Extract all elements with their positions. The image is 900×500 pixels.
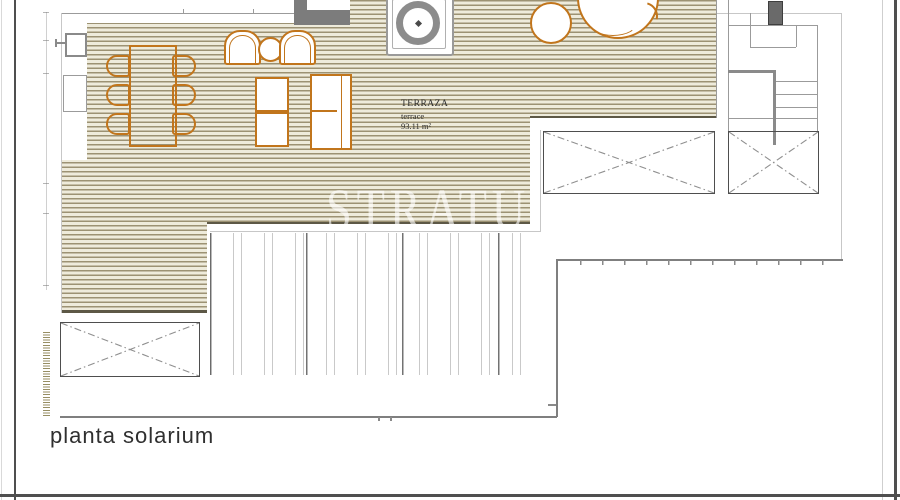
deck-edge	[62, 310, 207, 313]
bbq-grill	[386, 0, 454, 56]
room-label: TERRAZA terrace 93.11 m²	[401, 99, 448, 131]
wall-switch	[65, 33, 87, 57]
tick-mark	[183, 9, 184, 14]
tick-mark	[378, 417, 380, 421]
armchair	[279, 30, 316, 65]
plant-swirl	[588, 8, 638, 36]
boundary-hatch	[43, 330, 50, 416]
stair-tread	[773, 94, 818, 95]
page-frame-line	[14, 0, 16, 500]
deck-right-line	[716, 0, 717, 118]
tick-mark	[548, 404, 556, 406]
stair-line	[817, 25, 818, 131]
boundary-line	[60, 416, 557, 418]
page-frame-line	[882, 0, 883, 500]
stair-tread	[773, 81, 818, 82]
dining-chair	[106, 84, 130, 106]
boundary-line	[556, 259, 558, 417]
dining-chair	[106, 113, 130, 135]
dimension-tick	[43, 12, 49, 13]
dimension-tick	[43, 183, 49, 184]
sun-lounger	[310, 74, 352, 150]
deck-table	[255, 77, 289, 112]
skylight	[728, 131, 819, 194]
skylight	[543, 131, 715, 194]
stair-line	[728, 25, 817, 26]
wall-switch-cap	[55, 39, 57, 47]
plant	[530, 2, 572, 44]
dining-chair	[172, 84, 196, 106]
dining-chair	[172, 55, 196, 77]
plan-left-line	[61, 13, 62, 313]
room-name-en: terrace	[401, 111, 448, 121]
stair-line	[750, 13, 751, 47]
armchair	[224, 30, 261, 65]
dining-chair	[172, 113, 196, 135]
tick-mark	[253, 9, 254, 14]
chimney	[768, 1, 783, 25]
stair-wall-line	[728, 0, 729, 131]
dimension-tick	[43, 40, 49, 41]
door	[63, 75, 87, 112]
dimension-line	[46, 12, 47, 290]
page-frame-line	[1, 0, 2, 500]
deck-table	[255, 112, 289, 147]
dimension-tick	[43, 213, 49, 214]
roof-below-line	[540, 130, 541, 232]
floor-plan-canvas: STRATU	[0, 0, 900, 500]
dining-table	[129, 45, 177, 147]
lounger-divider	[341, 76, 343, 148]
plan-title: planta solarium	[50, 423, 214, 449]
room-area: 93.11 m²	[401, 121, 448, 131]
dimension-tick	[43, 73, 49, 74]
stair-line	[750, 47, 796, 48]
roof-below-line	[841, 13, 842, 259]
stair-tread	[773, 107, 818, 108]
dining-chair	[106, 55, 130, 77]
deck-edge	[530, 116, 717, 118]
page-frame-line	[894, 0, 897, 500]
room-name: TERRAZA	[401, 99, 448, 111]
stair-line	[796, 25, 797, 47]
plan-top-line	[62, 13, 294, 14]
dimension-tick	[43, 285, 49, 286]
stair-handrail	[728, 70, 775, 73]
pergola-slats	[210, 233, 531, 375]
lounger-divider	[312, 110, 337, 112]
tick-mark	[390, 417, 392, 421]
boundary-ticks	[580, 260, 825, 265]
skylight	[60, 322, 200, 377]
wall-segment	[294, 10, 350, 25]
page-frame-line	[0, 494, 900, 497]
